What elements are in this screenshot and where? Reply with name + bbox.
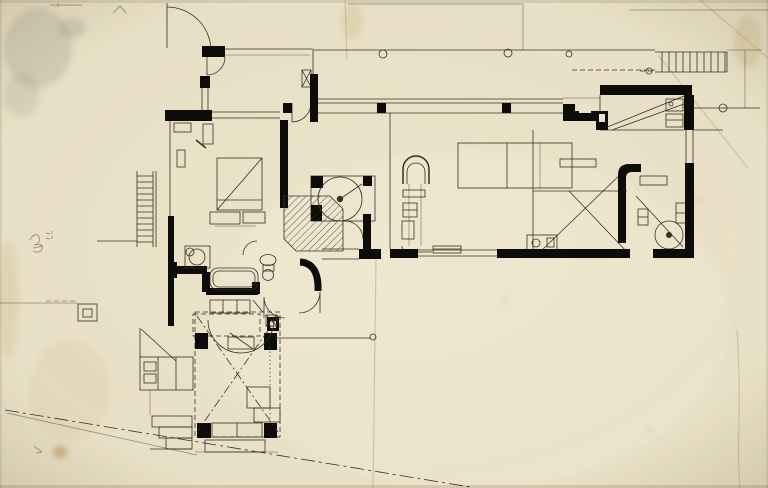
column xyxy=(264,423,277,438)
column xyxy=(502,103,511,113)
hatched-hall xyxy=(284,196,343,251)
aged-paper xyxy=(0,0,768,488)
floor-plan-drawing xyxy=(0,0,768,488)
column xyxy=(195,333,208,349)
column xyxy=(377,103,386,113)
column xyxy=(197,423,211,438)
drawing-sheet xyxy=(0,0,768,488)
